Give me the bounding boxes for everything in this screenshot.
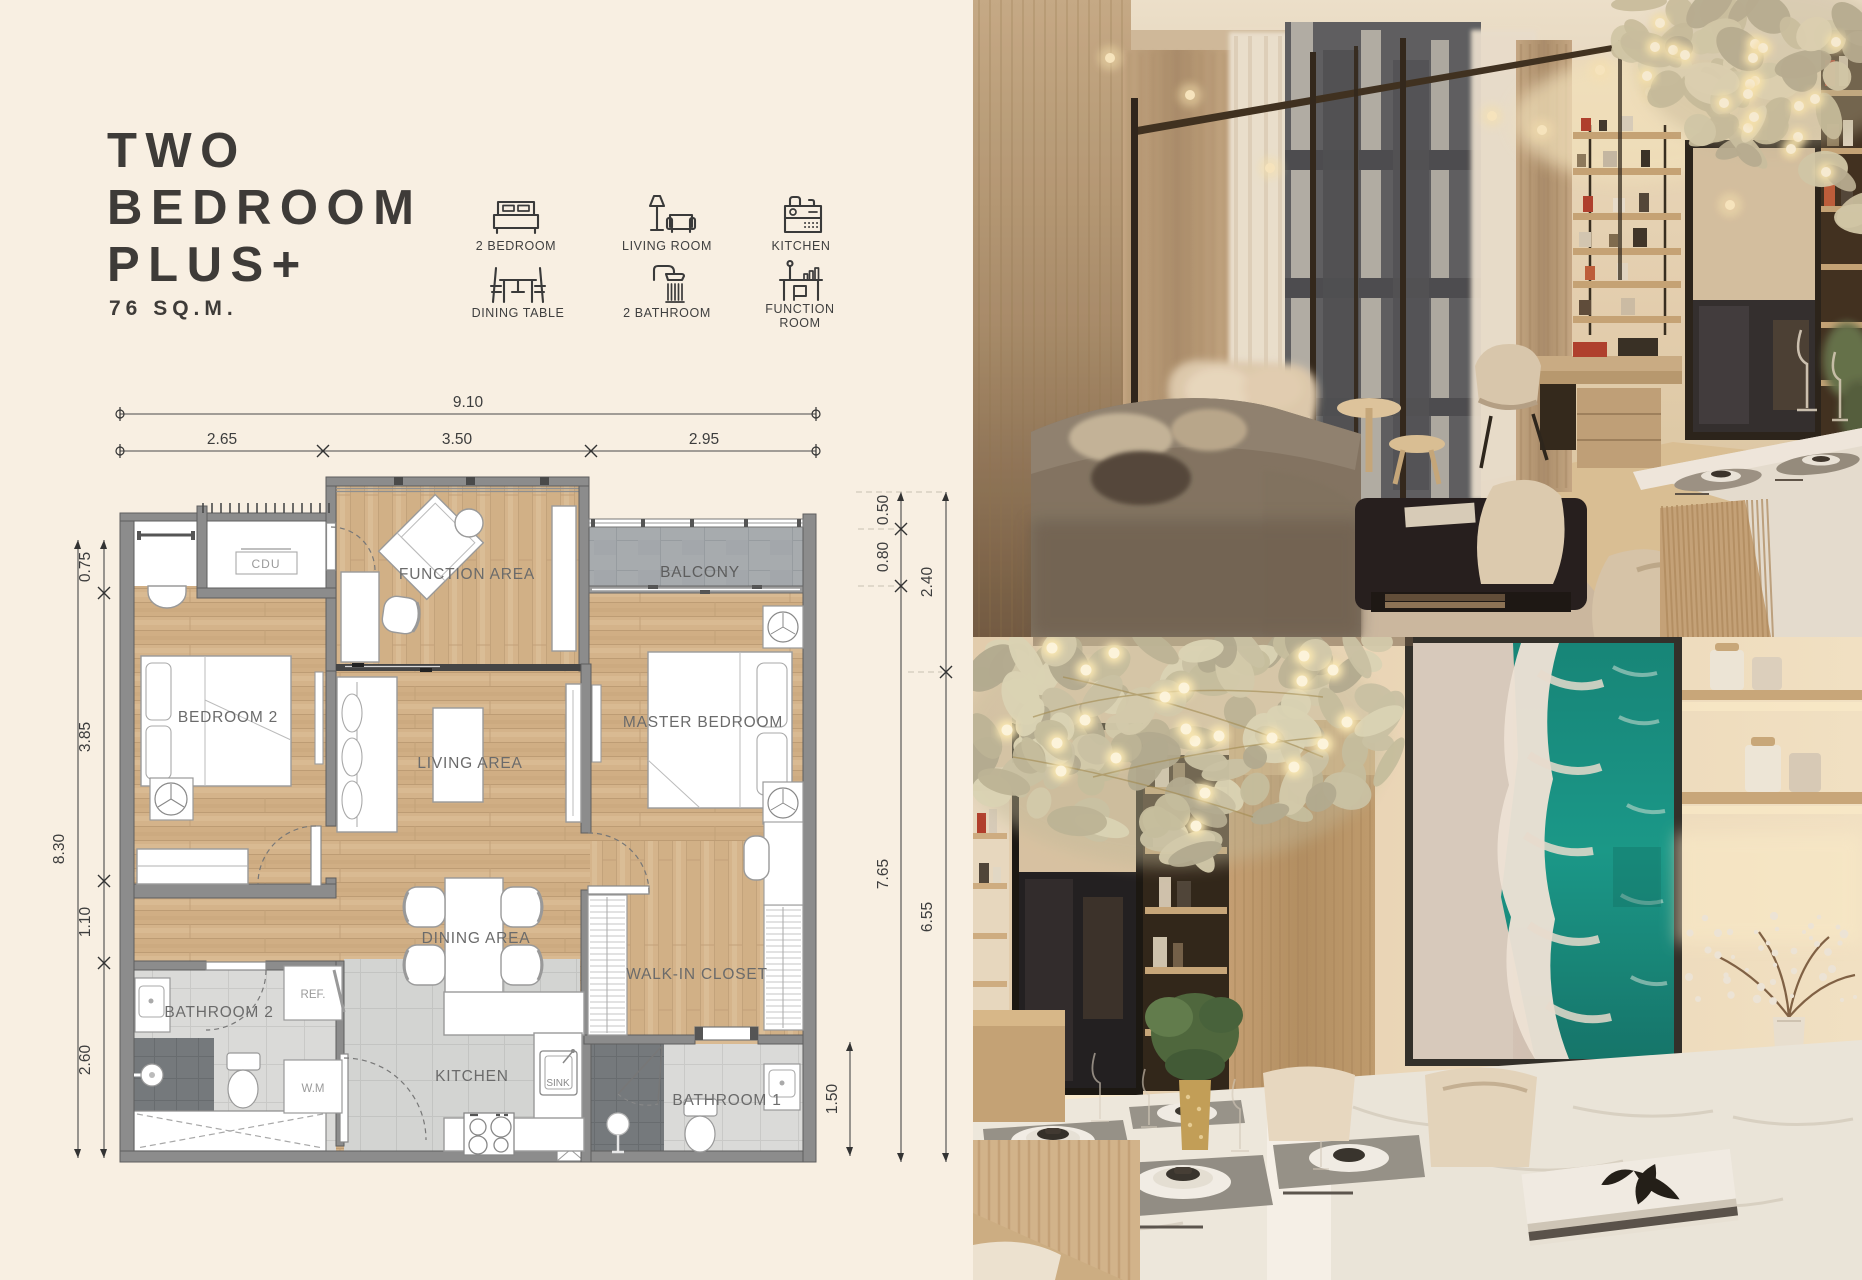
svg-text:DINING AREA: DINING AREA [422, 930, 531, 947]
svg-text:WALK-IN CLOSET: WALK-IN CLOSET [626, 966, 768, 983]
svg-text:BALCONY: BALCONY [660, 564, 740, 581]
svg-text:3.85: 3.85 [77, 722, 94, 752]
svg-text:W.M: W.M [302, 1083, 325, 1095]
svg-text:BATHROOM 2: BATHROOM 2 [164, 1004, 273, 1021]
svg-text:1.10: 1.10 [77, 907, 94, 938]
svg-text:LIVING AREA: LIVING AREA [417, 755, 522, 772]
svg-text:0.75: 0.75 [77, 552, 94, 582]
svg-text:2.40: 2.40 [919, 567, 936, 598]
svg-text:2.60: 2.60 [77, 1045, 94, 1076]
svg-text:8.30: 8.30 [51, 834, 68, 865]
svg-text:0.80: 0.80 [875, 542, 892, 573]
svg-text:FUNCTION AREA: FUNCTION AREA [399, 566, 535, 583]
svg-text:CDU: CDU [252, 557, 281, 571]
svg-text:BEDROOM 2: BEDROOM 2 [178, 709, 278, 726]
svg-text:SINK: SINK [546, 1078, 570, 1089]
svg-text:1.50: 1.50 [824, 1084, 841, 1115]
svg-text:0.50: 0.50 [875, 495, 892, 526]
svg-text:2.95: 2.95 [689, 431, 719, 448]
svg-text:9.10: 9.10 [453, 394, 484, 411]
svg-text:MASTER BEDROOM: MASTER BEDROOM [623, 714, 783, 731]
svg-text:KITCHEN: KITCHEN [435, 1068, 509, 1085]
svg-text:3.50: 3.50 [442, 431, 473, 448]
svg-text:2.65: 2.65 [207, 431, 237, 448]
svg-text:BATHROOM 1: BATHROOM 1 [672, 1092, 781, 1109]
svg-text:7.65: 7.65 [875, 859, 892, 889]
svg-text:6.55: 6.55 [919, 902, 936, 932]
svg-text:REF.: REF. [301, 989, 326, 1001]
